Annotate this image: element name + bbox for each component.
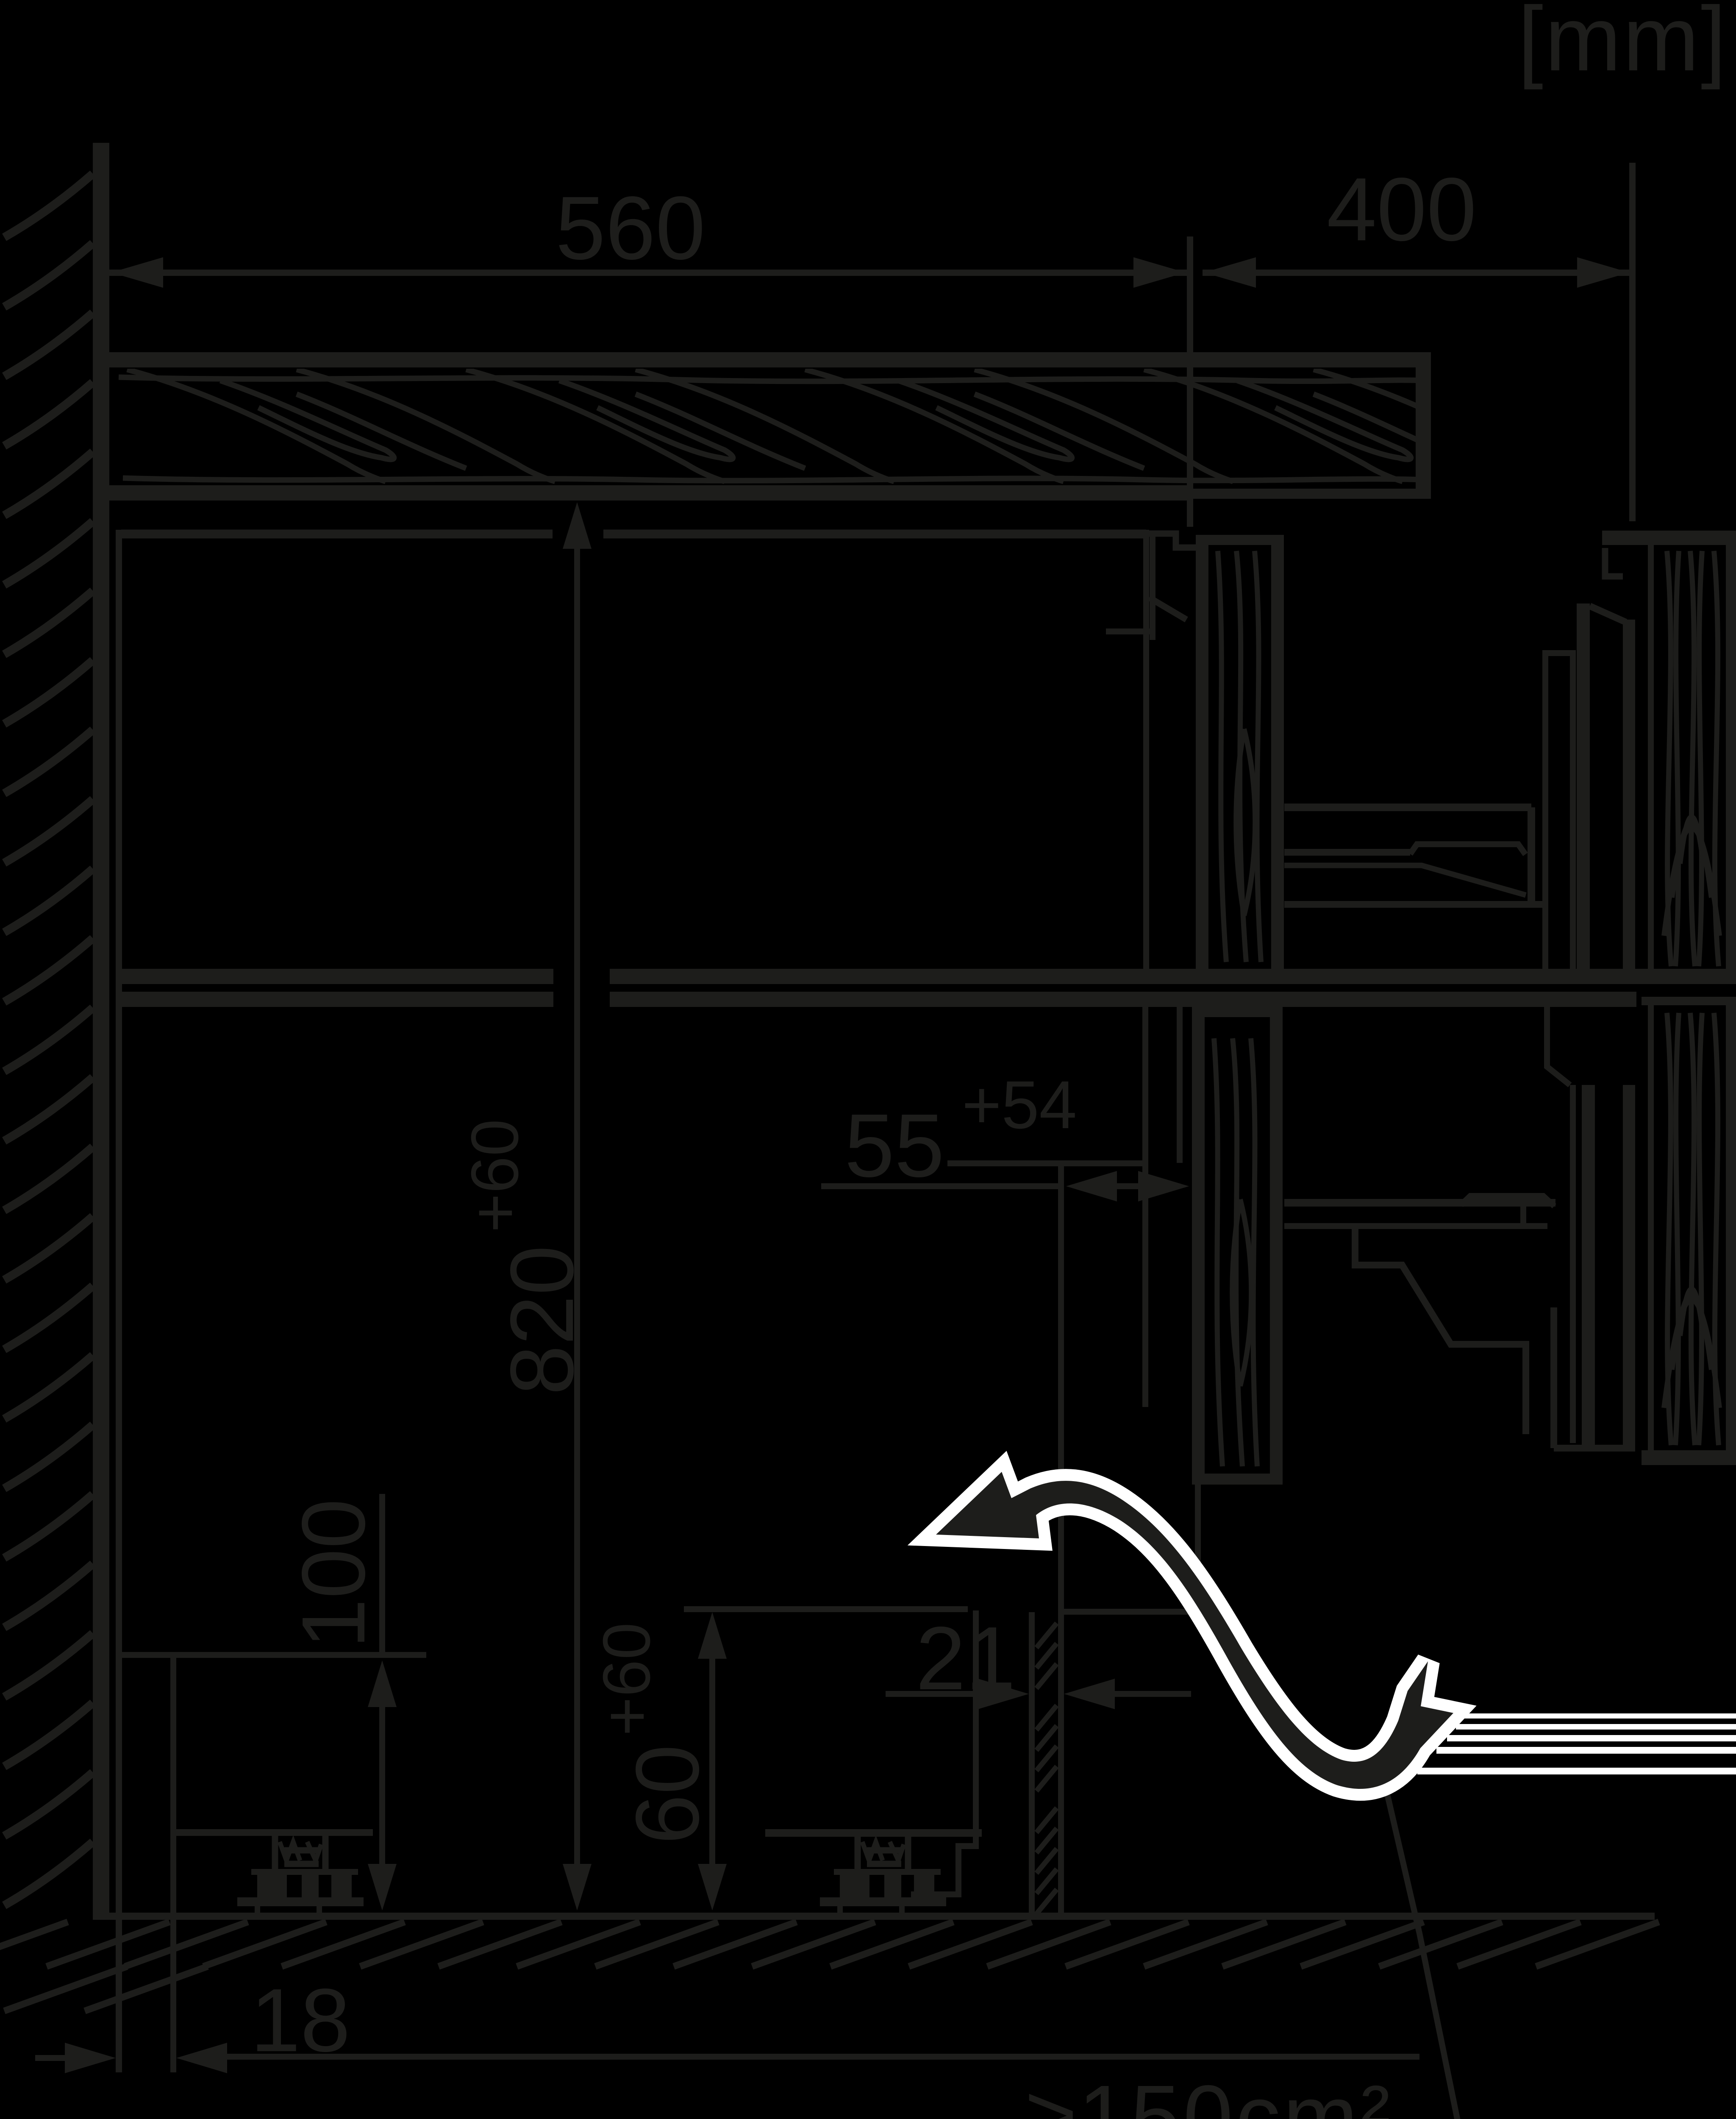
svg-text:100: 100 (283, 1499, 383, 1649)
svg-text:[mm]: [mm] (1518, 0, 1728, 90)
svg-text:560: 560 (556, 178, 706, 278)
svg-text:+54: +54 (962, 1067, 1077, 1143)
svg-text:400: 400 (1327, 159, 1477, 259)
svg-text:≥150cm²: ≥150cm² (1026, 2066, 1393, 2119)
svg-text:55: 55 (844, 1095, 944, 1196)
